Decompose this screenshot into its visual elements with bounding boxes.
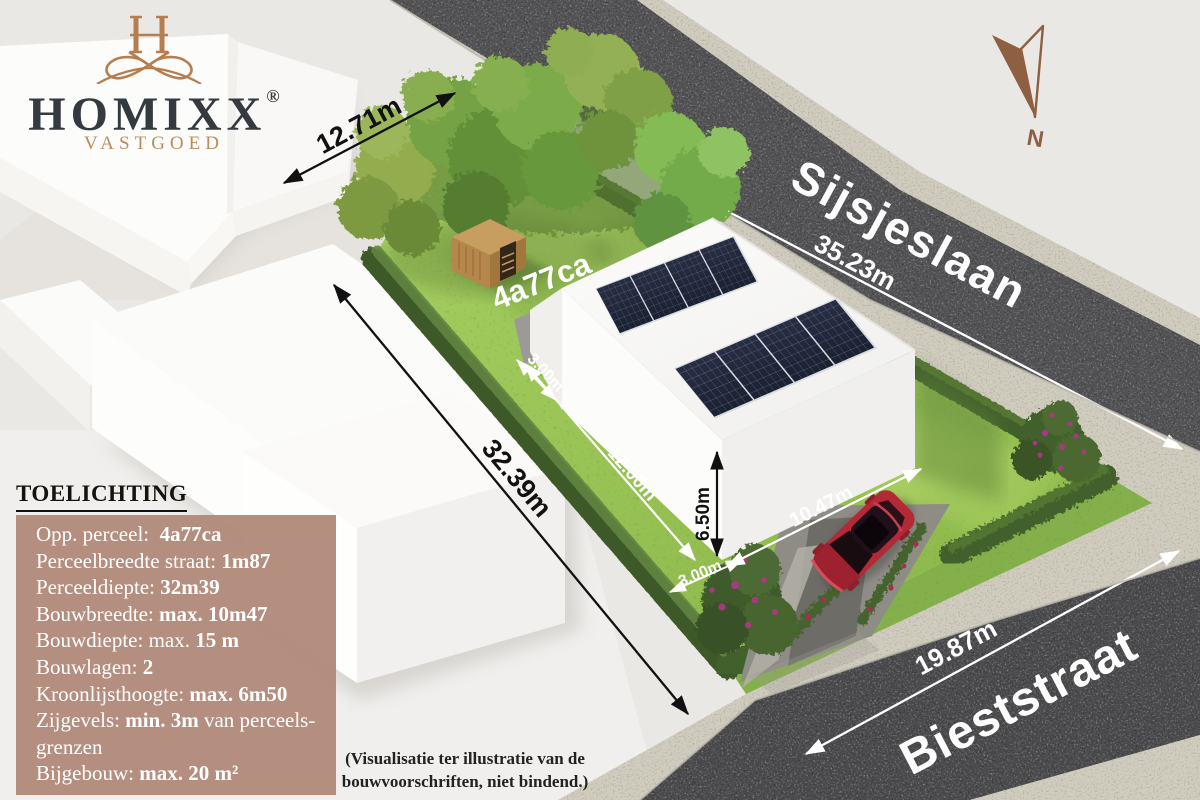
svg-text:6.50m: 6.50m [693,487,714,541]
